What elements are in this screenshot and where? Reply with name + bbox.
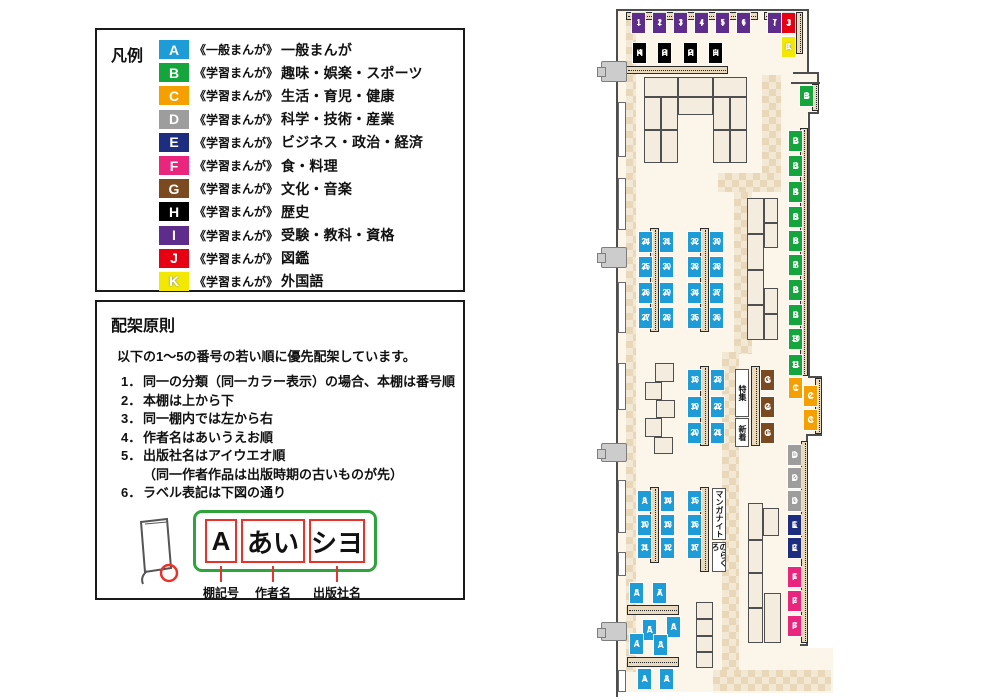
shelf-label-I6: I6 xyxy=(737,13,750,33)
shelf-block xyxy=(764,288,778,314)
wall xyxy=(809,112,819,114)
door xyxy=(601,247,627,268)
shelf-label-E2: E2 xyxy=(788,538,801,558)
shelf-label-A33: A33 xyxy=(688,257,701,277)
shelf-label-A32: A32 xyxy=(688,232,701,252)
door xyxy=(601,443,627,462)
shelf-block xyxy=(696,652,713,668)
shelf-label-A31: A31 xyxy=(660,232,673,252)
shelf-label-A38: A38 xyxy=(710,257,723,277)
shelf-block xyxy=(764,223,778,248)
shelf-label-B7: B7 xyxy=(789,255,802,275)
floor-map: I1I2I3I4I5I6I7J1K1H4H3H2H1B1B2B3B4B5B6B7… xyxy=(0,0,1000,700)
shelf-block xyxy=(696,619,713,636)
shelf-label-A13: A13 xyxy=(661,515,674,535)
shelf-label-A25: A25 xyxy=(639,257,652,277)
shelf-label-A24: A24 xyxy=(639,232,652,252)
shelf-label-H1: H1 xyxy=(709,43,722,63)
bookshelf-strip xyxy=(626,66,728,74)
shelf-label-G1: G1 xyxy=(761,423,774,443)
shelf-label-G2: G2 xyxy=(761,397,774,417)
walkway xyxy=(626,12,636,672)
shelf-block xyxy=(713,77,747,97)
bookshelf-strip xyxy=(700,366,709,446)
shelf-label-K1: K1 xyxy=(782,37,795,57)
shelf-label-I2: I2 xyxy=(653,13,666,33)
shelf-block xyxy=(747,234,764,270)
shelf-label-A3: A3 xyxy=(654,635,667,655)
shelf-label-A16: A16 xyxy=(688,515,701,535)
shelf-label-A11: A11 xyxy=(638,538,651,558)
shelf-label-I1: I1 xyxy=(632,13,645,33)
bookshelf-strip xyxy=(650,487,659,563)
shelf-label-C3: C3 xyxy=(804,410,817,430)
wall xyxy=(617,9,809,11)
shelf-label-F1: F1 xyxy=(788,567,801,587)
shelf-block xyxy=(747,270,764,305)
shelf-block xyxy=(645,418,662,437)
info-box-新着: 新着 xyxy=(735,418,749,447)
bookshelf-strip xyxy=(627,657,679,667)
wall-shelf xyxy=(618,552,626,576)
shelf-label-A14: A14 xyxy=(661,491,674,511)
shelf-label-A22: A22 xyxy=(711,397,724,417)
wall xyxy=(807,9,809,73)
shelf-label-A34: A34 xyxy=(688,283,701,303)
shelf-label-B2: B2 xyxy=(789,131,802,151)
shelf-label-J1: J1 xyxy=(782,13,795,33)
shelf-label-H4: H4 xyxy=(633,43,646,63)
shelf-block xyxy=(713,130,730,163)
shelf-label-A19: A19 xyxy=(688,397,701,417)
shelf-label-E1: E1 xyxy=(788,515,801,535)
shelf-label-D3: D3 xyxy=(788,491,801,511)
shelf-label-B5: B5 xyxy=(789,207,802,227)
shelf-label-B6: B6 xyxy=(789,231,802,251)
shelf-label-A8: A8 xyxy=(630,583,643,603)
walkway xyxy=(762,75,781,180)
bookshelf-strip xyxy=(796,12,803,54)
shelf-label-A36: A36 xyxy=(710,308,723,328)
shelf-label-A35: A35 xyxy=(688,308,701,328)
shelf-label-D1: D1 xyxy=(788,445,801,465)
shelf-label-A21: A21 xyxy=(711,423,724,443)
info-box-のらくろ: のらくろ xyxy=(712,542,726,572)
shelf-block xyxy=(656,400,675,418)
shelf-label-A23: A23 xyxy=(711,370,724,390)
shelf-label-D2: D2 xyxy=(788,468,801,488)
bookshelf-strip xyxy=(751,366,760,446)
shelf-block xyxy=(654,437,673,454)
shelf-block xyxy=(764,314,778,340)
shelf-label-B3: B3 xyxy=(789,156,802,176)
shelf-label-A17: A17 xyxy=(688,538,701,558)
shelf-label-B10: B10 xyxy=(789,329,802,349)
shelf-block xyxy=(644,130,661,163)
shelf-label-A30: A30 xyxy=(660,257,673,277)
info-box-マンガナイト: マンガナイト xyxy=(712,488,726,540)
shelf-block xyxy=(764,593,781,643)
shelf-block xyxy=(730,97,747,130)
shelf-block xyxy=(730,130,747,163)
shelf-block xyxy=(678,77,713,97)
shelf-label-A29: A29 xyxy=(660,283,673,303)
wall-shelf xyxy=(618,670,626,692)
bookshelf-strip xyxy=(627,605,679,615)
shelf-label-A20: A20 xyxy=(688,423,701,443)
shelf-label-C1: C1 xyxy=(789,378,802,398)
wall-shelf xyxy=(618,282,626,333)
bookshelf-strip xyxy=(801,441,808,643)
shelf-label-A26: A26 xyxy=(639,283,652,303)
shelf-block xyxy=(747,305,764,340)
door xyxy=(601,622,627,641)
wall xyxy=(800,644,808,646)
shelf-label-I7: I7 xyxy=(768,13,781,33)
shelf-label-A7: A7 xyxy=(653,583,666,603)
shelf-block xyxy=(763,508,779,536)
shelf-label-A27: A27 xyxy=(639,308,652,328)
wall xyxy=(806,434,822,436)
shelf-label-B9: B9 xyxy=(789,305,802,325)
shelf-block xyxy=(655,363,674,382)
shelf-block xyxy=(764,198,778,223)
wall-shelf xyxy=(618,480,626,533)
shelf-block xyxy=(645,382,662,400)
shelf-block xyxy=(661,97,678,130)
wall-shelf xyxy=(618,363,626,410)
shelf-label-G3: G3 xyxy=(761,370,774,390)
shelf-label-A15: A15 xyxy=(688,491,701,511)
shelf-block xyxy=(644,77,678,97)
shelf-block xyxy=(748,608,763,643)
shelf-block xyxy=(661,130,678,163)
wall-shelf xyxy=(618,102,626,157)
shelf-label-B8: B8 xyxy=(789,280,802,300)
bookshelf-strip xyxy=(700,228,709,332)
door xyxy=(601,61,627,82)
shelf-label-F2: F2 xyxy=(788,591,801,611)
bookshelf-strip xyxy=(700,487,709,572)
wall xyxy=(808,112,810,378)
shelf-block xyxy=(748,573,763,608)
shelf-label-A2: A2 xyxy=(660,669,673,689)
shelf-label-A1: A1 xyxy=(638,669,651,689)
shelf-label-H3: H3 xyxy=(658,43,671,63)
walkway xyxy=(713,670,831,691)
shelf-label-I4: I4 xyxy=(695,13,708,33)
shelf-label-I5: I5 xyxy=(716,13,729,33)
shelf-label-A12: A12 xyxy=(661,538,674,558)
shelf-label-A39: A39 xyxy=(710,232,723,252)
shelf-label-F3: F3 xyxy=(788,616,801,636)
shelf-block xyxy=(696,602,713,619)
walkway xyxy=(718,173,781,192)
shelf-label-B11: B11 xyxy=(789,355,802,375)
wall-shelf xyxy=(618,178,626,230)
shelf-block xyxy=(696,636,713,652)
shelf-label-A37: A37 xyxy=(710,283,723,303)
shelf-label-A4: A4 xyxy=(630,634,643,654)
page: 凡例 A 《一般まんが》 一般まんが B 《学習まんが》 趣味・娯楽・スポーツ … xyxy=(0,0,1000,700)
shelf-label-I3: I3 xyxy=(674,13,687,33)
shelf-label-H2: H2 xyxy=(684,43,697,63)
info-box-特集: 特集 xyxy=(735,369,749,417)
shelf-label-B4: B4 xyxy=(789,182,802,202)
shelf-block xyxy=(678,97,713,115)
shelf-block xyxy=(713,97,730,130)
shelf-block xyxy=(644,97,661,130)
shelf-block xyxy=(748,540,763,573)
shelf-label-A10: A10 xyxy=(638,515,651,535)
shelf-label-A18: A18 xyxy=(688,370,701,390)
shelf-block xyxy=(747,198,764,234)
shelf-label-A6: A6 xyxy=(667,617,680,637)
shelf-label-C2: C2 xyxy=(804,386,817,406)
shelf-label-A28: A28 xyxy=(660,308,673,328)
shelf-label-B1: B1 xyxy=(800,86,813,106)
shelf-block xyxy=(748,503,763,540)
bookshelf-strip xyxy=(812,84,819,111)
shelf-label-A9: A9 xyxy=(638,491,651,511)
